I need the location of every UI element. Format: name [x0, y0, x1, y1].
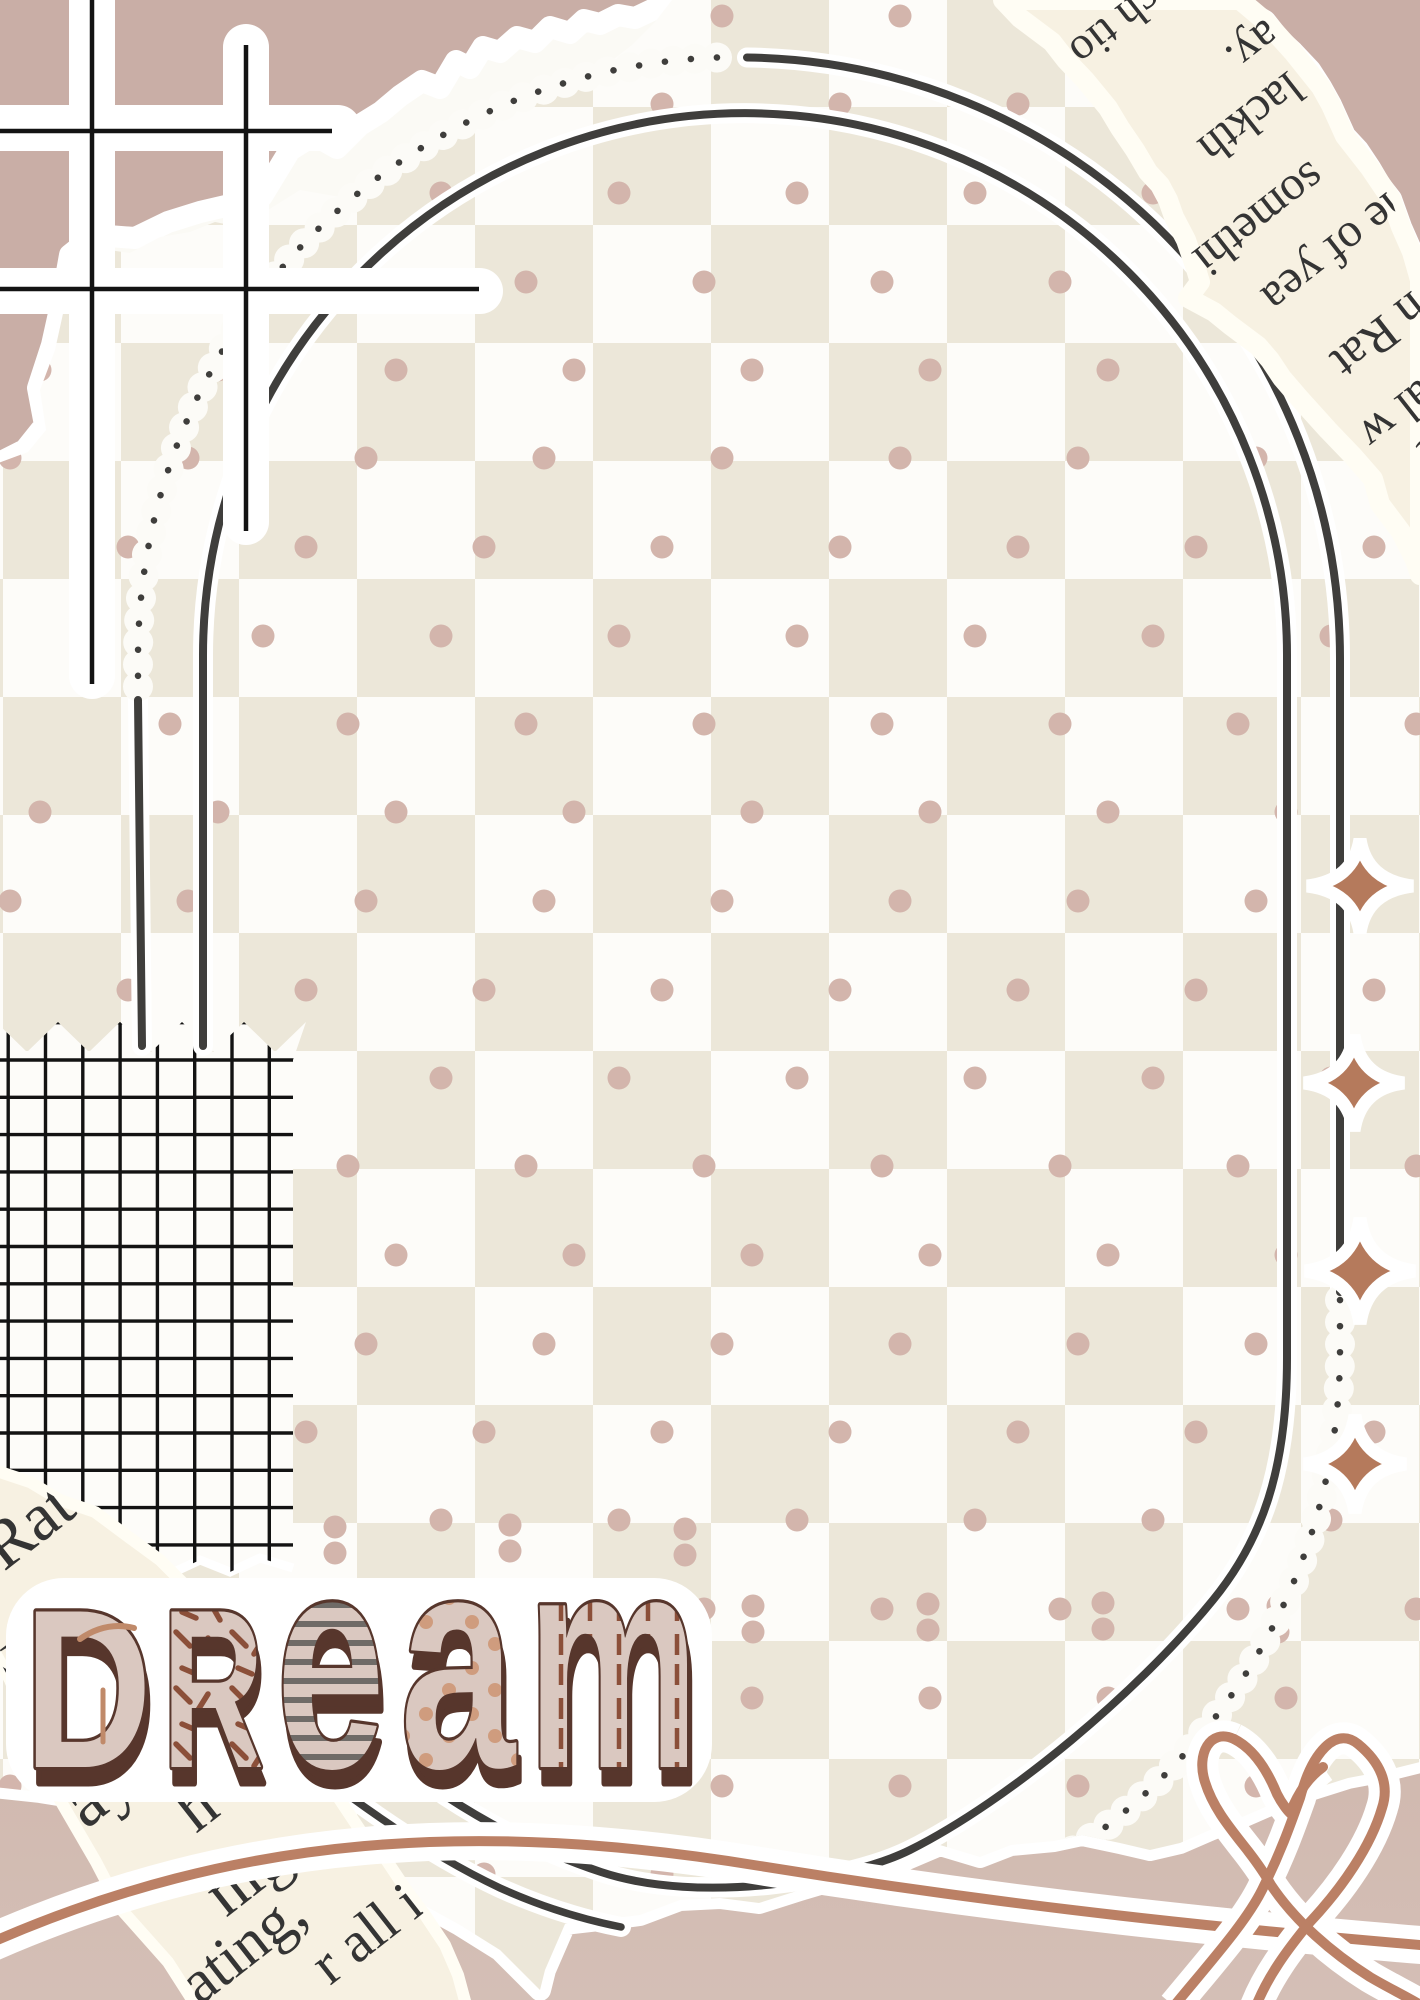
svg-text:m: m: [527, 1490, 699, 1832]
svg-text:a: a: [400, 1490, 516, 1832]
svg-text:D: D: [24, 1562, 152, 1815]
svg-text:R: R: [162, 1562, 264, 1815]
svg-text:e: e: [276, 1490, 385, 1832]
